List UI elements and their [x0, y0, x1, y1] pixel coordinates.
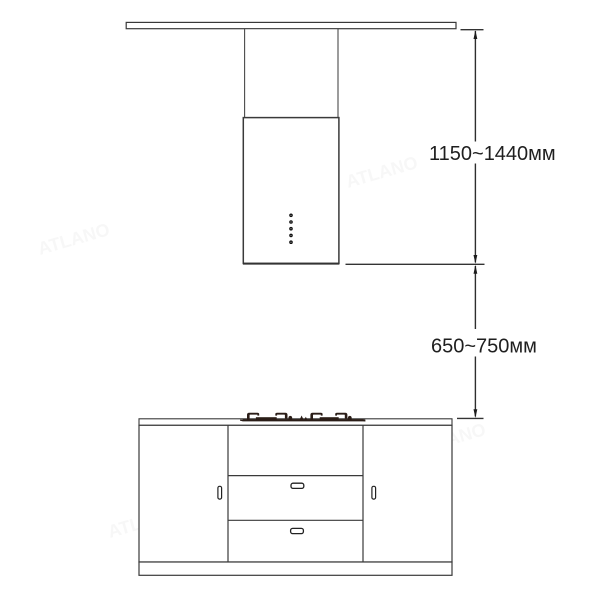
svg-text:650~750мм: 650~750мм	[431, 336, 537, 358]
svg-text:1150~1440мм: 1150~1440мм	[429, 143, 556, 165]
